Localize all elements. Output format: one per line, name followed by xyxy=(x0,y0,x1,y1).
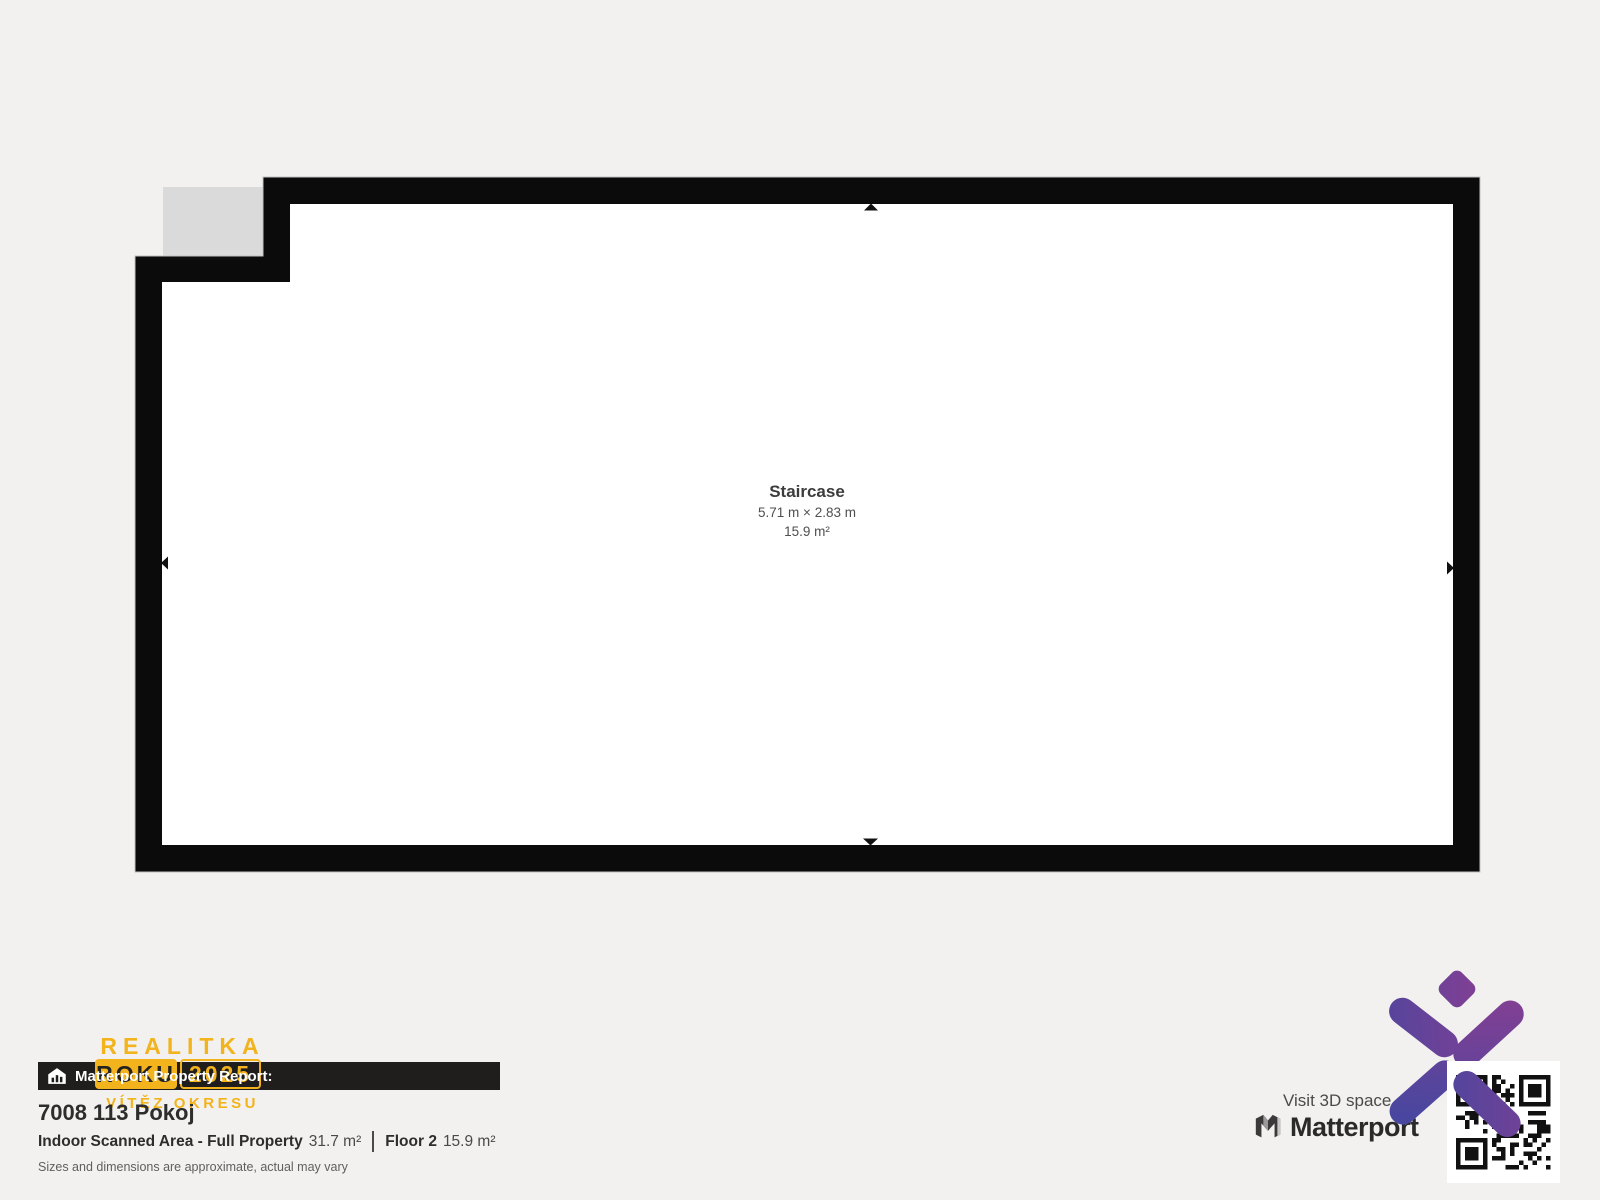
room-area: 15.9 m² xyxy=(758,522,856,541)
report-bar-title: Matterport Property Report: xyxy=(75,1068,273,1085)
room-dimensions: 5.71 m × 2.83 m xyxy=(758,503,856,522)
area-label: Indoor Scanned Area - Full Property xyxy=(38,1133,303,1151)
floor-label: Floor 2 xyxy=(385,1133,437,1151)
report-bar-content: Matterport Property Report: xyxy=(47,1062,273,1090)
logo-bar-lower-right xyxy=(1380,1040,1540,1160)
disclaimer: Sizes and dimensions are approximate, ac… xyxy=(38,1160,348,1174)
page: Staircase 5.71 m × 2.83 m 15.9 m² REALIT… xyxy=(0,0,1600,1200)
logo-diamond xyxy=(1436,968,1478,1010)
house-chart-icon xyxy=(47,1066,67,1086)
matterport-m-icon xyxy=(1253,1113,1283,1143)
room-label: Staircase 5.71 m × 2.83 m 15.9 m² xyxy=(758,482,856,541)
area-stats: Indoor Scanned Area - Full Property 31.7… xyxy=(38,1131,496,1152)
floor-plan xyxy=(0,0,1600,1200)
room-name: Staircase xyxy=(758,482,856,502)
award-title: REALITKA xyxy=(95,1035,270,1057)
stats-divider xyxy=(372,1131,374,1152)
excluded-area xyxy=(163,187,263,256)
property-title: 7008 113 Pokoj xyxy=(38,1100,195,1126)
area-value: 31.7 m² xyxy=(309,1133,362,1151)
floor-value: 15.9 m² xyxy=(443,1133,496,1151)
